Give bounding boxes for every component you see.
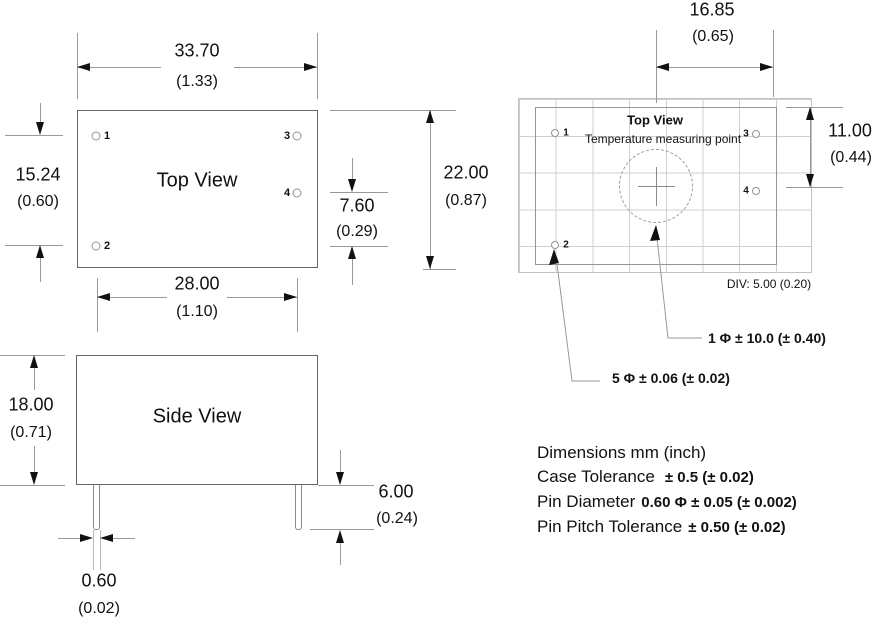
arrow-up-icon (426, 110, 434, 123)
dim-line (656, 67, 773, 68)
arrow-left-icon (656, 63, 669, 71)
note-value: 0.60 Φ ± 0.05 (± 0.002) (641, 494, 797, 511)
ext-line (297, 278, 298, 332)
dim-offset-inch: (0.65) (692, 28, 734, 46)
pin-3 (293, 132, 302, 141)
arrow-down-icon (348, 179, 356, 192)
dim-line (34, 368, 35, 390)
ext-line (330, 192, 388, 193)
dim-pitch-inch: (1.10) (176, 303, 218, 321)
arrow-down-icon (426, 256, 434, 269)
dim-width-inch: (1.33) (176, 73, 218, 91)
note-units: Dimensions mm (inch) (537, 441, 797, 465)
ext-line (423, 269, 456, 270)
pin-2-label: 2 (104, 240, 110, 252)
note-pin-diameter: Pin Diameter0.60 Φ ± 0.05 (± 0.002) (537, 490, 797, 515)
note-value: ± 0.5 (± 0.02) (665, 469, 754, 486)
mechanical-dimension-drawing: 33.70 (1.33) Top View 1 2 3 4 15.24 (0.6… (0, 0, 874, 623)
leader-pin (557, 264, 600, 381)
note-label: Pin Diameter (537, 492, 635, 511)
ext-line (786, 107, 843, 108)
dim-line (58, 538, 80, 539)
dim-line (352, 259, 353, 285)
dim-pinlen-inch: (0.24) (376, 510, 418, 528)
side-pin-left (93, 485, 100, 530)
note-units-text: Dimensions mm (inch) (537, 443, 706, 462)
arrow-up-icon (348, 246, 356, 259)
arrow-down-icon (806, 174, 814, 187)
dim-line (352, 158, 353, 179)
arrow-left-icon (77, 63, 90, 71)
arrow-right-icon (304, 63, 317, 71)
callout-measuring-point: 1 Φ ± 10.0 (± 0.40) (708, 330, 826, 346)
ext-line (97, 278, 98, 332)
ext-line (786, 187, 843, 188)
pin-2 (92, 242, 101, 251)
ext-line (330, 110, 456, 111)
dim-pindia-mm: 0.60 (81, 571, 116, 592)
dim-line (40, 103, 41, 122)
grid-pin-1 (551, 129, 559, 137)
side-pin-right (295, 485, 302, 530)
note-label: Case Tolerance (537, 467, 655, 486)
dim-pinspan-mm: 15.24 (15, 165, 60, 186)
dim-vspan-mm: 11.00 (828, 121, 872, 142)
arrow-up-icon (30, 355, 38, 368)
arrow-left-icon (100, 534, 113, 542)
arrow-right-icon (80, 534, 93, 542)
dim-pitch-mm: 28.00 (174, 274, 219, 295)
dim-pinlen-mm: 6.00 (378, 482, 413, 503)
note-pin-pitch: Pin Pitch Tolerance± 0.50 (± 0.02) (537, 515, 797, 540)
grid-pin-3-label: 3 (743, 129, 749, 140)
ext-line (5, 135, 63, 136)
grid-pin-1-label: 1 (563, 128, 569, 139)
top-view-title: Top View (157, 170, 238, 193)
dim-offset-mm: 16.85 (689, 0, 734, 21)
grid-pin-3 (752, 130, 760, 138)
arrow-down-icon (36, 122, 44, 135)
dim-vspan-inch: (0.44) (830, 149, 872, 167)
grid-div-label: DIV: 5.00 (0.20) (727, 277, 811, 291)
ext-line (93, 530, 94, 570)
grid-pin-2 (551, 241, 559, 249)
grid-pin-4 (752, 187, 760, 195)
note-case-tolerance: Case Tolerance± 0.5 (± 0.02) (537, 465, 797, 490)
ext-line (317, 33, 318, 99)
pin-1 (92, 132, 101, 141)
dim-pindia-inch: (0.02) (78, 600, 120, 618)
arrow-right-icon (284, 293, 297, 301)
dim-line (340, 543, 341, 565)
ext-line (773, 30, 774, 97)
dim-line (34, 446, 35, 472)
pin-4 (293, 189, 302, 198)
dim-sideheight-mm: 18.00 (8, 395, 53, 416)
dim-pinspan-inch: (0.60) (17, 193, 59, 211)
callout-pin: 5 Φ ± 0.06 (± 0.02) (612, 370, 730, 386)
ext-line (330, 246, 388, 247)
crosshair-icon (656, 167, 657, 206)
arrow-up-icon (36, 245, 44, 258)
pin-1-label: 1 (104, 130, 110, 142)
side-view-title: Side View (153, 406, 242, 429)
note-value: ± 0.50 (± 0.02) (688, 519, 785, 536)
dim-width-mm: 33.70 (174, 41, 219, 62)
dim-height-inch: (0.87) (445, 192, 487, 210)
arrow-down-icon (336, 472, 344, 485)
dim-line (430, 110, 431, 269)
arrow-up-icon (806, 107, 814, 120)
dim-line (40, 258, 41, 282)
grid-view-subtitle: Temperature measuring point (585, 132, 741, 146)
notes-block: Dimensions mm (inch) Case Tolerance± 0.5… (537, 441, 797, 540)
dim-sideheight-inch: (0.71) (10, 424, 52, 442)
note-label: Pin Pitch Tolerance (537, 517, 682, 536)
ext-line (5, 245, 63, 246)
dim-line (113, 538, 135, 539)
ext-line (318, 485, 374, 486)
grid-view-title: Top View (627, 113, 683, 128)
dim-pin4-mm: 7.60 (339, 196, 374, 217)
dim-line (340, 450, 341, 472)
pin-3-label: 3 (284, 130, 290, 142)
dim-height-mm: 22.00 (443, 163, 488, 184)
ext-line (0, 485, 65, 486)
arrow-right-icon (760, 63, 773, 71)
arrow-up-icon (336, 530, 344, 543)
pin-4-label: 4 (284, 187, 290, 199)
grid-pin-2-label: 2 (563, 240, 569, 251)
arrow-left-icon (97, 293, 110, 301)
arrow-down-icon (30, 472, 38, 485)
grid-pin-4-label: 4 (743, 186, 749, 197)
dim-pin4-inch: (0.29) (336, 223, 378, 241)
